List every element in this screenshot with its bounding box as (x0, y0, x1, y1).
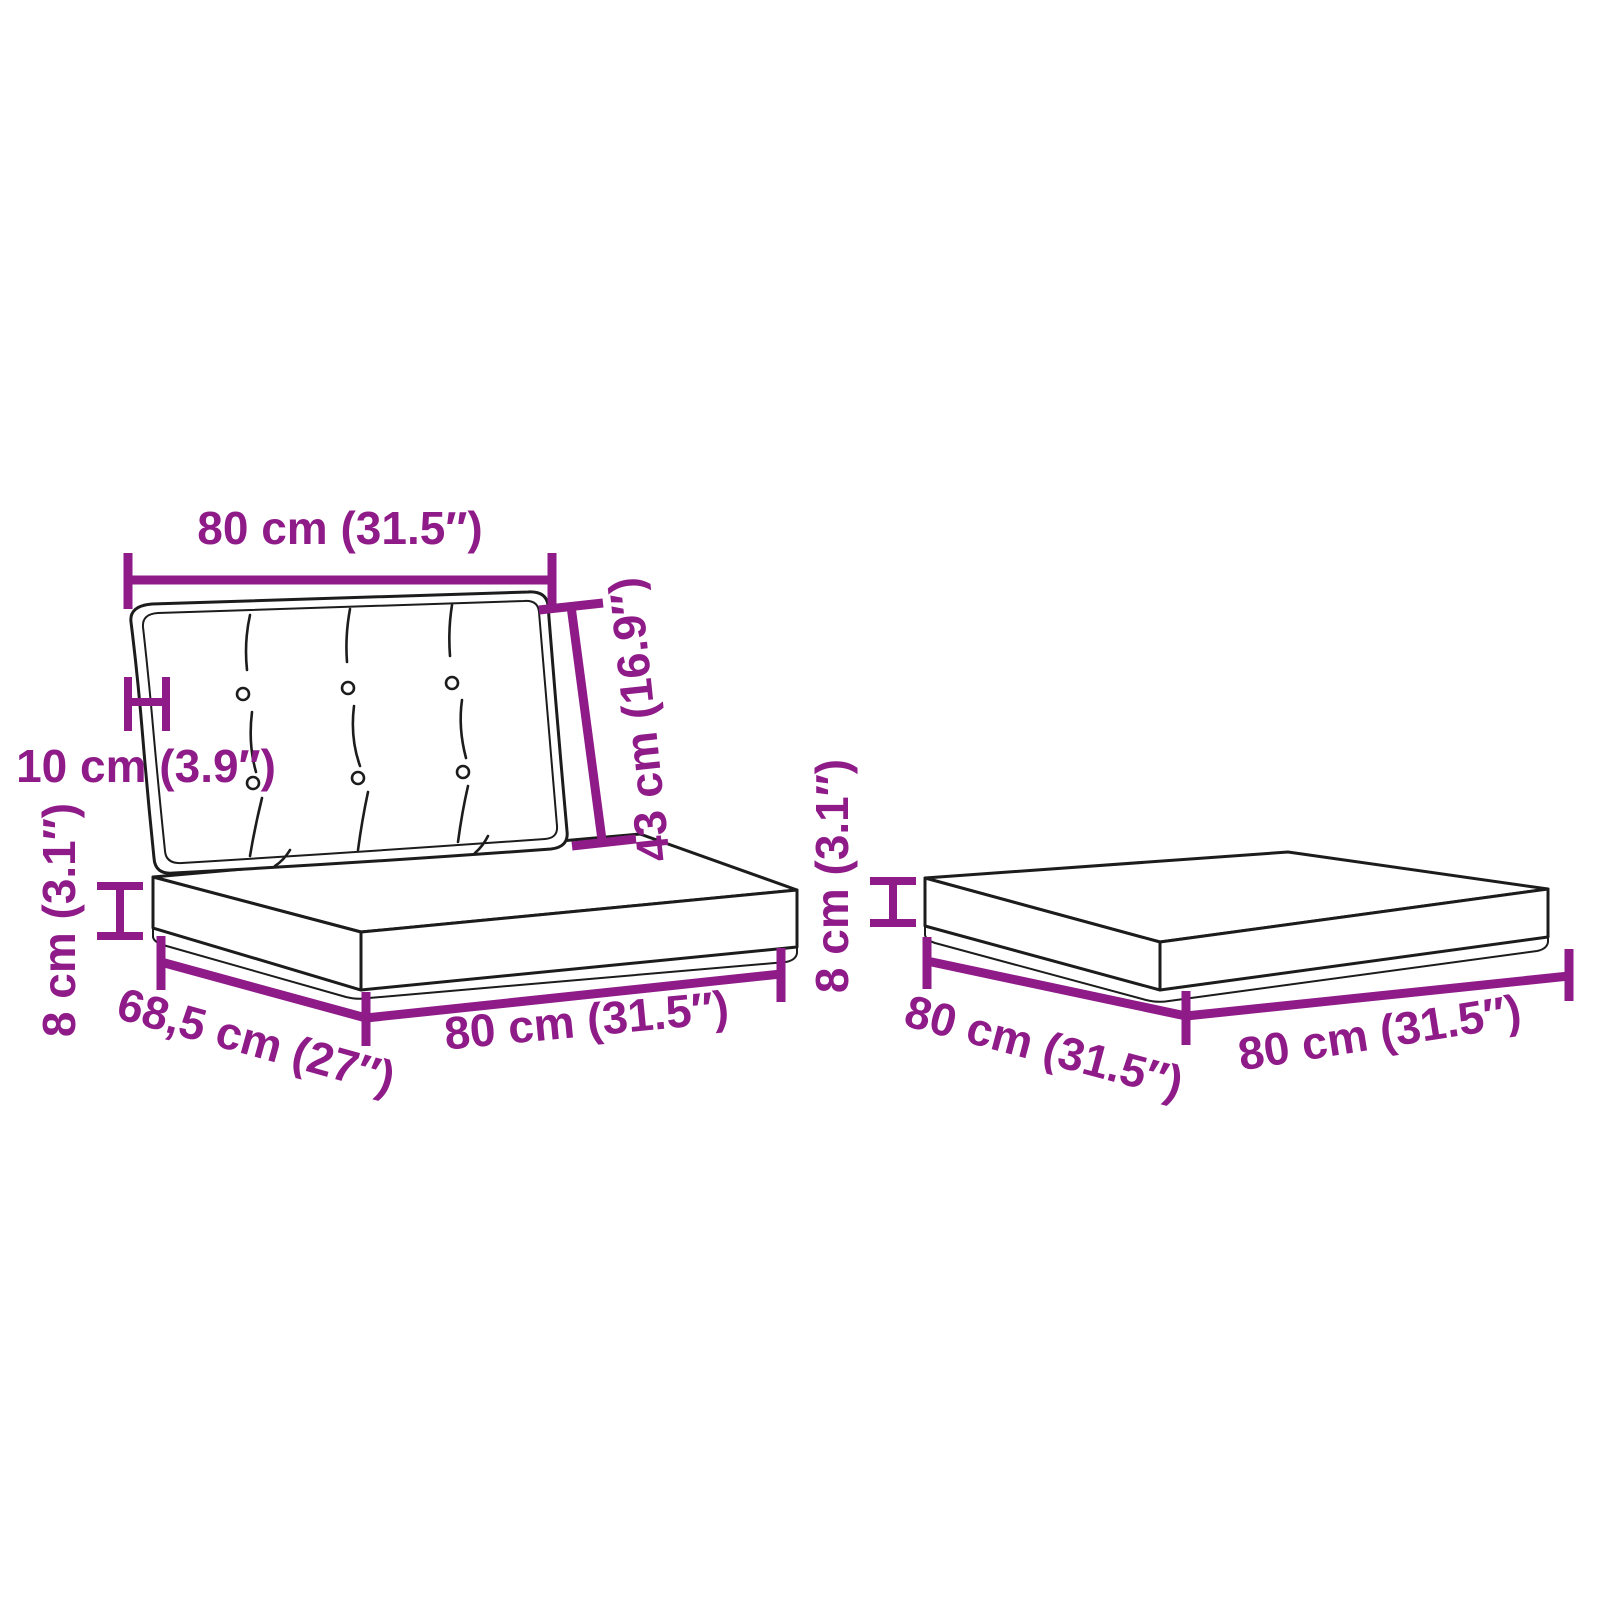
product-dimension-diagram: 80 cm (31.5″) 43 cm (16.9″) 10 cm (3.9″) (0, 0, 1600, 1600)
seat-thickness-label: 8 cm (3.1″) (33, 803, 85, 1037)
single-cushion-thickness-dimension: 8 cm (3.1″) (806, 759, 916, 993)
tuft-button (342, 682, 354, 694)
dimension-diagram-canvas: 80 cm (31.5″) 43 cm (16.9″) 10 cm (3.9″) (0, 0, 1600, 1600)
single-cushion-thickness-label: 8 cm (3.1″) (806, 759, 858, 993)
single-cushion-figure: 8 cm (3.1″) 80 cm (31.5″) 80 cm (31.5″) (806, 759, 1569, 1109)
tuft-button (446, 677, 458, 689)
tuft-button (352, 772, 364, 784)
seat-depth-label: 68,5 cm (27″) (112, 977, 401, 1103)
cushion-set-figure: 80 cm (31.5″) 43 cm (16.9″) 10 cm (3.9″) (16, 502, 797, 1104)
tuft-button (237, 688, 249, 700)
backrest-height-label: 43 cm (16.9″) (598, 575, 680, 864)
backrest-cushion-outline (131, 592, 567, 873)
backrest-width-label: 80 cm (31.5″) (197, 502, 482, 554)
backrest-thickness-label: 10 cm (3.9″) (16, 740, 276, 792)
tuft-button (457, 766, 469, 778)
backrest-cushion (131, 592, 567, 873)
